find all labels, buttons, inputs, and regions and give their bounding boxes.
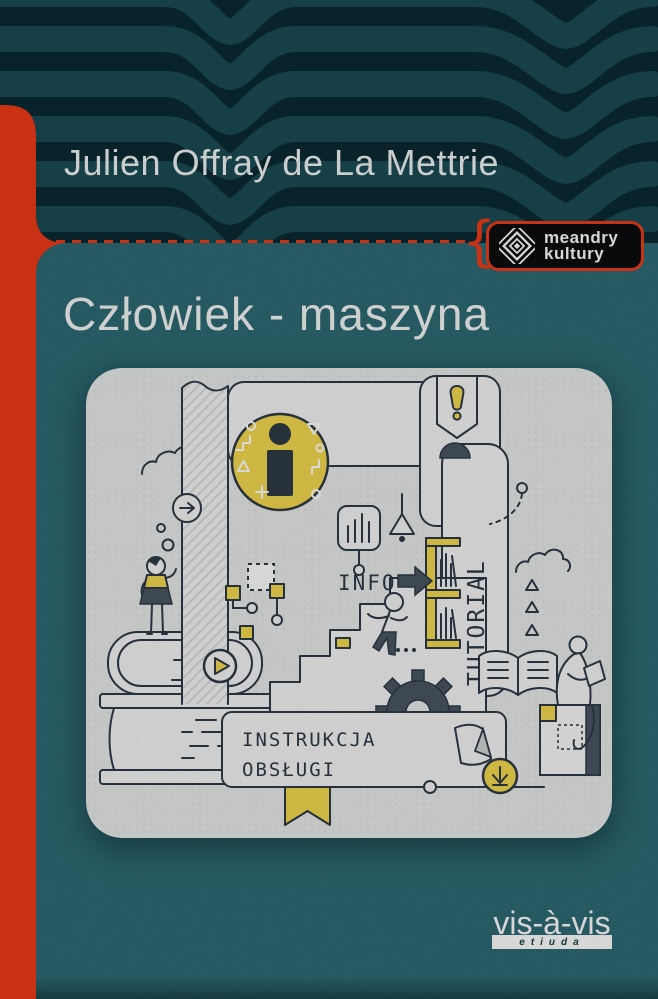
imprint-logo: vis-à-vis etiuda: [492, 907, 612, 949]
manual-label-line2: OBSŁUGI: [242, 759, 336, 781]
play-icon: [204, 650, 236, 682]
manual-label-line1: INSTRUKCJA: [242, 729, 376, 751]
next-step-icon: [173, 494, 201, 522]
info-label: INFO: [338, 567, 432, 595]
cover-body: Człowiek - maszyna: [36, 243, 658, 999]
book-title: Człowiek - maszyna: [63, 287, 490, 341]
svg-text:INFO: INFO: [338, 571, 397, 595]
dashed-divider: [40, 240, 466, 243]
imprint-name: vis-à-vis: [492, 907, 612, 939]
bottom-vignette: [36, 977, 658, 999]
author-name: Julien Offray de La Mettrie: [64, 142, 499, 184]
book-cover: { "colors": { "red": "#ee3a18", "teal": …: [0, 0, 658, 999]
drapery-pattern: [0, 0, 658, 243]
info-icon: [232, 414, 328, 510]
publisher-badge: meandry kultury: [486, 221, 644, 271]
open-book-icon: [479, 651, 557, 695]
imprint-series: etiuda: [519, 937, 584, 948]
exclamation-icon: [437, 376, 477, 438]
illustration-panel: INSTRUKCJA OBSŁUGI: [86, 368, 612, 838]
publisher-name: meandry kultury: [544, 230, 618, 262]
cover-header: Julien Offray de La Mettrie: [0, 0, 658, 243]
download-arrow-icon: [483, 759, 517, 793]
concentric-diamond-icon: [499, 228, 535, 264]
